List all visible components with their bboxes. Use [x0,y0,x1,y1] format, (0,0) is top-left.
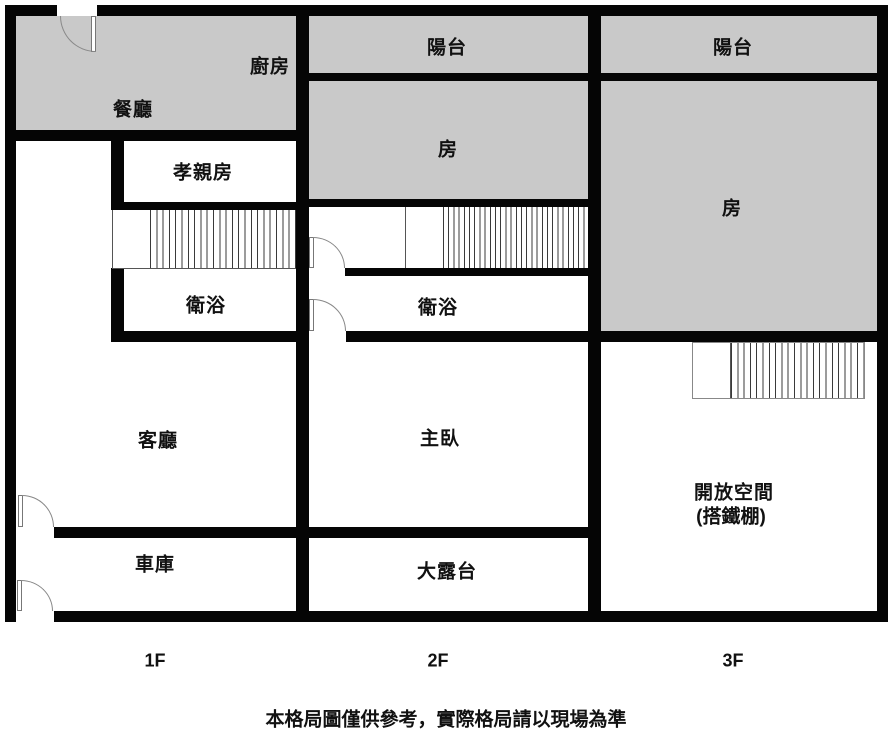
living-room-label: 客廳 [138,426,178,453]
room-2f-label: 房 [438,135,458,162]
staircase-3f [692,342,865,399]
room-3f-label: 房 [722,194,742,221]
wall-elder-room-bottom [111,202,309,210]
stair-treads-3f [731,343,864,398]
stair-treads-1f [150,210,297,268]
elder-room-label: 孝親房 [173,158,233,185]
doorway-kitchen [57,5,97,16]
stair-treads-2f [443,207,588,268]
outer-wall-bottom [5,611,888,622]
wall-dining-bottom [5,130,309,141]
wall-elder-room-left [111,130,124,210]
floor-label-3f: 3F [722,651,743,672]
wall-bath1f-bottom [111,331,307,342]
wall-living-garage [5,527,601,538]
kitchen-label: 廚房 [250,52,290,79]
outer-wall-right [877,5,888,622]
disclaimer-text: 本格局圖僅供參考，實際格局請以現場為準 [265,705,626,732]
wall-balcony-bottom [296,73,888,81]
bath-2f-label: 衛浴 [418,293,458,320]
wall-room2f-bottom [296,199,601,207]
floor-label-2f: 2F [427,651,448,672]
door-arc-living [22,495,54,527]
door-arc-garage [21,580,53,611]
staircase-1f [112,210,296,269]
outer-wall-top [5,5,888,16]
wall-bath2f-room3f-bottom [346,331,888,342]
master-bedroom-label: 主臥 [420,424,460,451]
floor-plan: 廚房 餐廳 孝親房 衛浴 客廳 車庫 陽台 房 衛浴 主臥 大露台 陽台 房 開… [0,0,889,737]
balcony-3f-label: 陽台 [713,33,753,60]
bath-1f-label: 衛浴 [186,291,226,318]
wall-stairhall2f-bottom [345,268,601,276]
terrace-label: 大露台 [417,557,477,584]
stair-landing-line-2f [405,207,406,268]
balcony-2f-label: 陽台 [427,33,467,60]
door-arc-bath-2f [313,299,346,331]
dining-label: 餐廳 [113,95,153,122]
doorway-garage [16,611,54,622]
open-space-sublabel: (搭鐵棚) [696,502,766,529]
open-space-label: 開放空間 [694,478,774,505]
doorway-living [16,527,54,538]
floor-label-1f: 1F [144,651,165,672]
staircase-2f [309,207,588,268]
garage-label: 車庫 [135,550,175,577]
